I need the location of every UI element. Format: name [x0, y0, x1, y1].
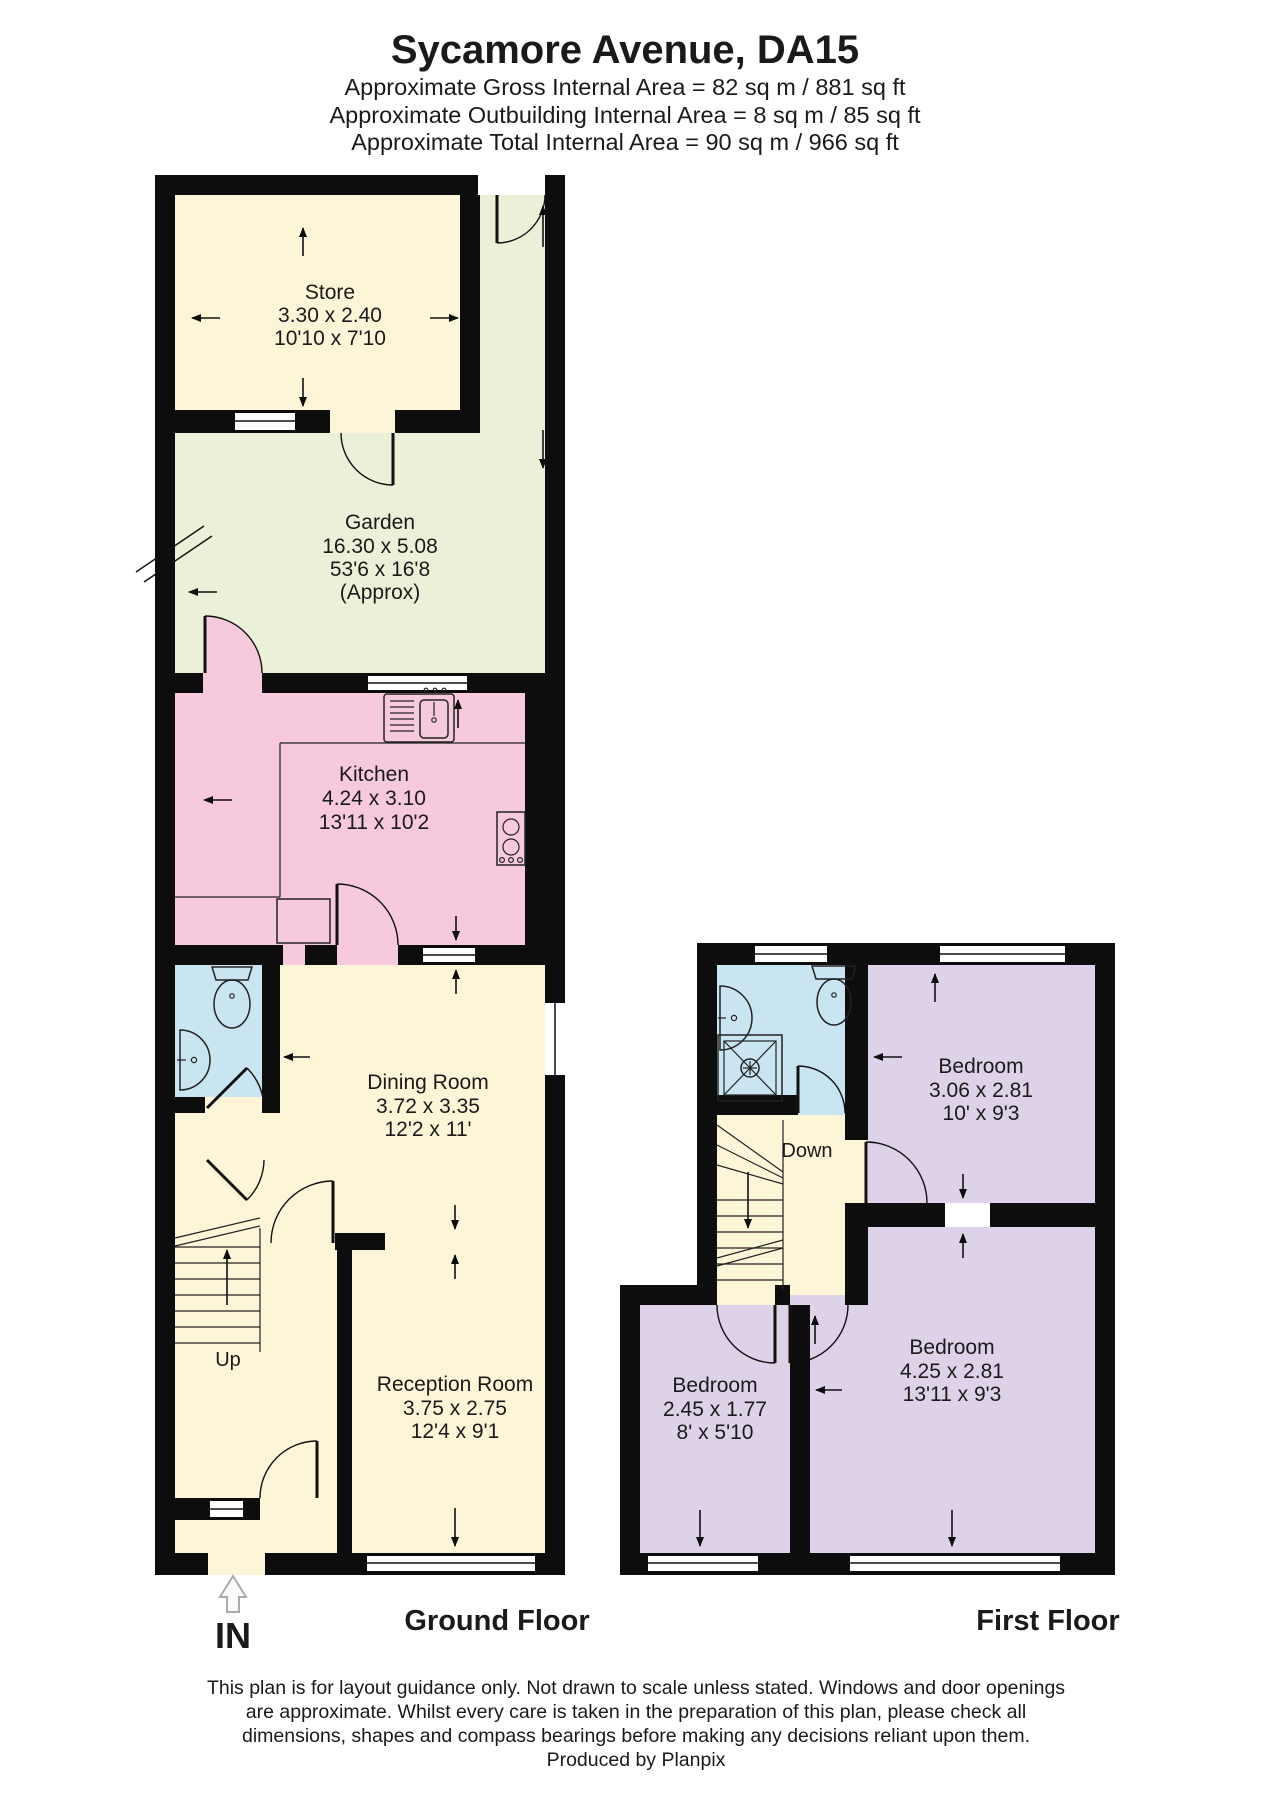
ground-floor-caption: Ground Floor: [404, 1605, 589, 1637]
store-dim-m: 3.30 x 2.40: [278, 304, 382, 327]
kitchen-garden-door-opening: [203, 673, 262, 693]
bedroom3-dim-m: 4.25 x 2.81: [900, 1360, 1004, 1383]
garden-dim-m: 16.30 x 5.08: [322, 535, 438, 558]
wc-right-wall: [262, 965, 280, 1113]
bedroom-divide-opening: [945, 1203, 990, 1227]
front-door-opening: [208, 1553, 265, 1575]
dining-name: Dining Room: [367, 1071, 488, 1094]
disclaimer-line-2: are approximate. Whilst every care is ta…: [246, 1701, 1026, 1723]
bedroom2-dim-ft: 8' x 5'10: [677, 1421, 754, 1444]
dining-dim-m: 3.72 x 3.35: [376, 1095, 480, 1118]
entrance-label: IN: [215, 1615, 251, 1656]
bedroom3-label: Bedroom 4.25 x 2.81 13'11 x 9'3: [900, 1336, 1004, 1406]
stairs-up-label: Up: [215, 1349, 241, 1371]
disclaimer-line-3: dimensions, shapes and compass bearings …: [242, 1725, 1030, 1747]
bedroom2-door-opening: [717, 1285, 775, 1305]
disclaimer-line-1: This plan is for layout guidance only. N…: [207, 1677, 1065, 1699]
bedroom2-bedroom3-wall: [790, 1305, 810, 1575]
header: Sycamore Avenue, DA15 Approximate Gross …: [329, 28, 921, 155]
bedroom2-dim-m: 2.45 x 1.77: [663, 1398, 767, 1421]
bedroom3-name: Bedroom: [909, 1336, 994, 1359]
landing-bedroom3-wall: [845, 1227, 868, 1305]
kitchen-right-wall: [525, 673, 545, 965]
garden-gate-opening: [478, 175, 545, 195]
store-bottom-wall: [155, 410, 480, 433]
kitchen-dim-ft: 13'11 x 10'2: [319, 811, 429, 834]
garden-note: (Approx): [340, 581, 421, 604]
page-title: Sycamore Avenue, DA15: [391, 28, 859, 72]
dining-room-label: Dining Room 3.72 x 3.35 12'2 x 11': [367, 1071, 488, 1141]
produced-by-line: Produced by Planpix: [547, 1749, 726, 1771]
store-name: Store: [305, 281, 355, 304]
kitchen-wall-notch: [283, 945, 305, 965]
store-right-wall: [460, 175, 480, 433]
bedroom3-floor-left: [800, 1295, 870, 1563]
gf-left-wall: [155, 175, 175, 1575]
dining-dim-ft: 12'2 x 11': [384, 1118, 471, 1141]
bedroom2-name: Bedroom: [672, 1374, 757, 1397]
landing-floor: [707, 1105, 853, 1305]
kitchen-dining-door-opening: [337, 945, 398, 965]
ff-right-wall: [1095, 943, 1115, 1575]
gross-area-line: Approximate Gross Internal Area = 82 sq …: [344, 74, 905, 100]
bedroom2-label: Bedroom 2.45 x 1.77 8' x 5'10: [663, 1374, 767, 1444]
bedroom1-dim-m: 3.06 x 2.81: [929, 1079, 1033, 1102]
kitchen-dim-m: 4.24 x 3.10: [322, 787, 426, 810]
floorplan-canvas: Sycamore Avenue, DA15 Approximate Gross …: [0, 0, 1272, 1800]
store-dim-ft: 10'10 x 7'10: [274, 327, 386, 350]
floorplan-page: Sycamore Avenue, DA15 Approximate Gross …: [0, 0, 1272, 1800]
outbuilding-area-line: Approximate Outbuilding Internal Area = …: [329, 102, 921, 128]
bathroom-bottom-wall: [697, 1095, 798, 1115]
garden-dim-ft: 53'6 x 16'8: [330, 558, 430, 581]
reception-dim-m: 3.75 x 2.75: [403, 1397, 507, 1420]
bedroom1-dim-ft: 10' x 9'3: [943, 1102, 1020, 1125]
bedroom1-label: Bedroom 3.06 x 2.81 10' x 9'3: [929, 1055, 1033, 1125]
bedroom2-left-wall: [620, 1285, 640, 1575]
footer-disclaimer: This plan is for layout guidance only. N…: [207, 1677, 1065, 1771]
bedroom1-name: Bedroom: [938, 1055, 1023, 1078]
reception-name: Reception Room: [377, 1373, 533, 1396]
total-area-line: Approximate Total Internal Area = 90 sq …: [351, 129, 899, 155]
gf-right-wall: [545, 175, 565, 1575]
stairs-down-label: Down: [781, 1140, 832, 1162]
entrance-arrow-icon: [220, 1576, 246, 1612]
first-floor-caption: First Floor: [976, 1605, 1119, 1637]
garden-name: Garden: [345, 511, 415, 534]
bedroom3-dim-ft: 13'11 x 9'3: [903, 1383, 1002, 1406]
reception-dim-ft: 12'4 x 9'1: [411, 1420, 500, 1443]
store-door-opening: [330, 410, 395, 433]
gf-top-wall: [155, 175, 490, 195]
ff-left-wall: [697, 943, 717, 1305]
kitchen-name: Kitchen: [339, 763, 409, 786]
vestibule-door-opening: [260, 1498, 337, 1520]
hall-reception-wall: [337, 1245, 352, 1553]
